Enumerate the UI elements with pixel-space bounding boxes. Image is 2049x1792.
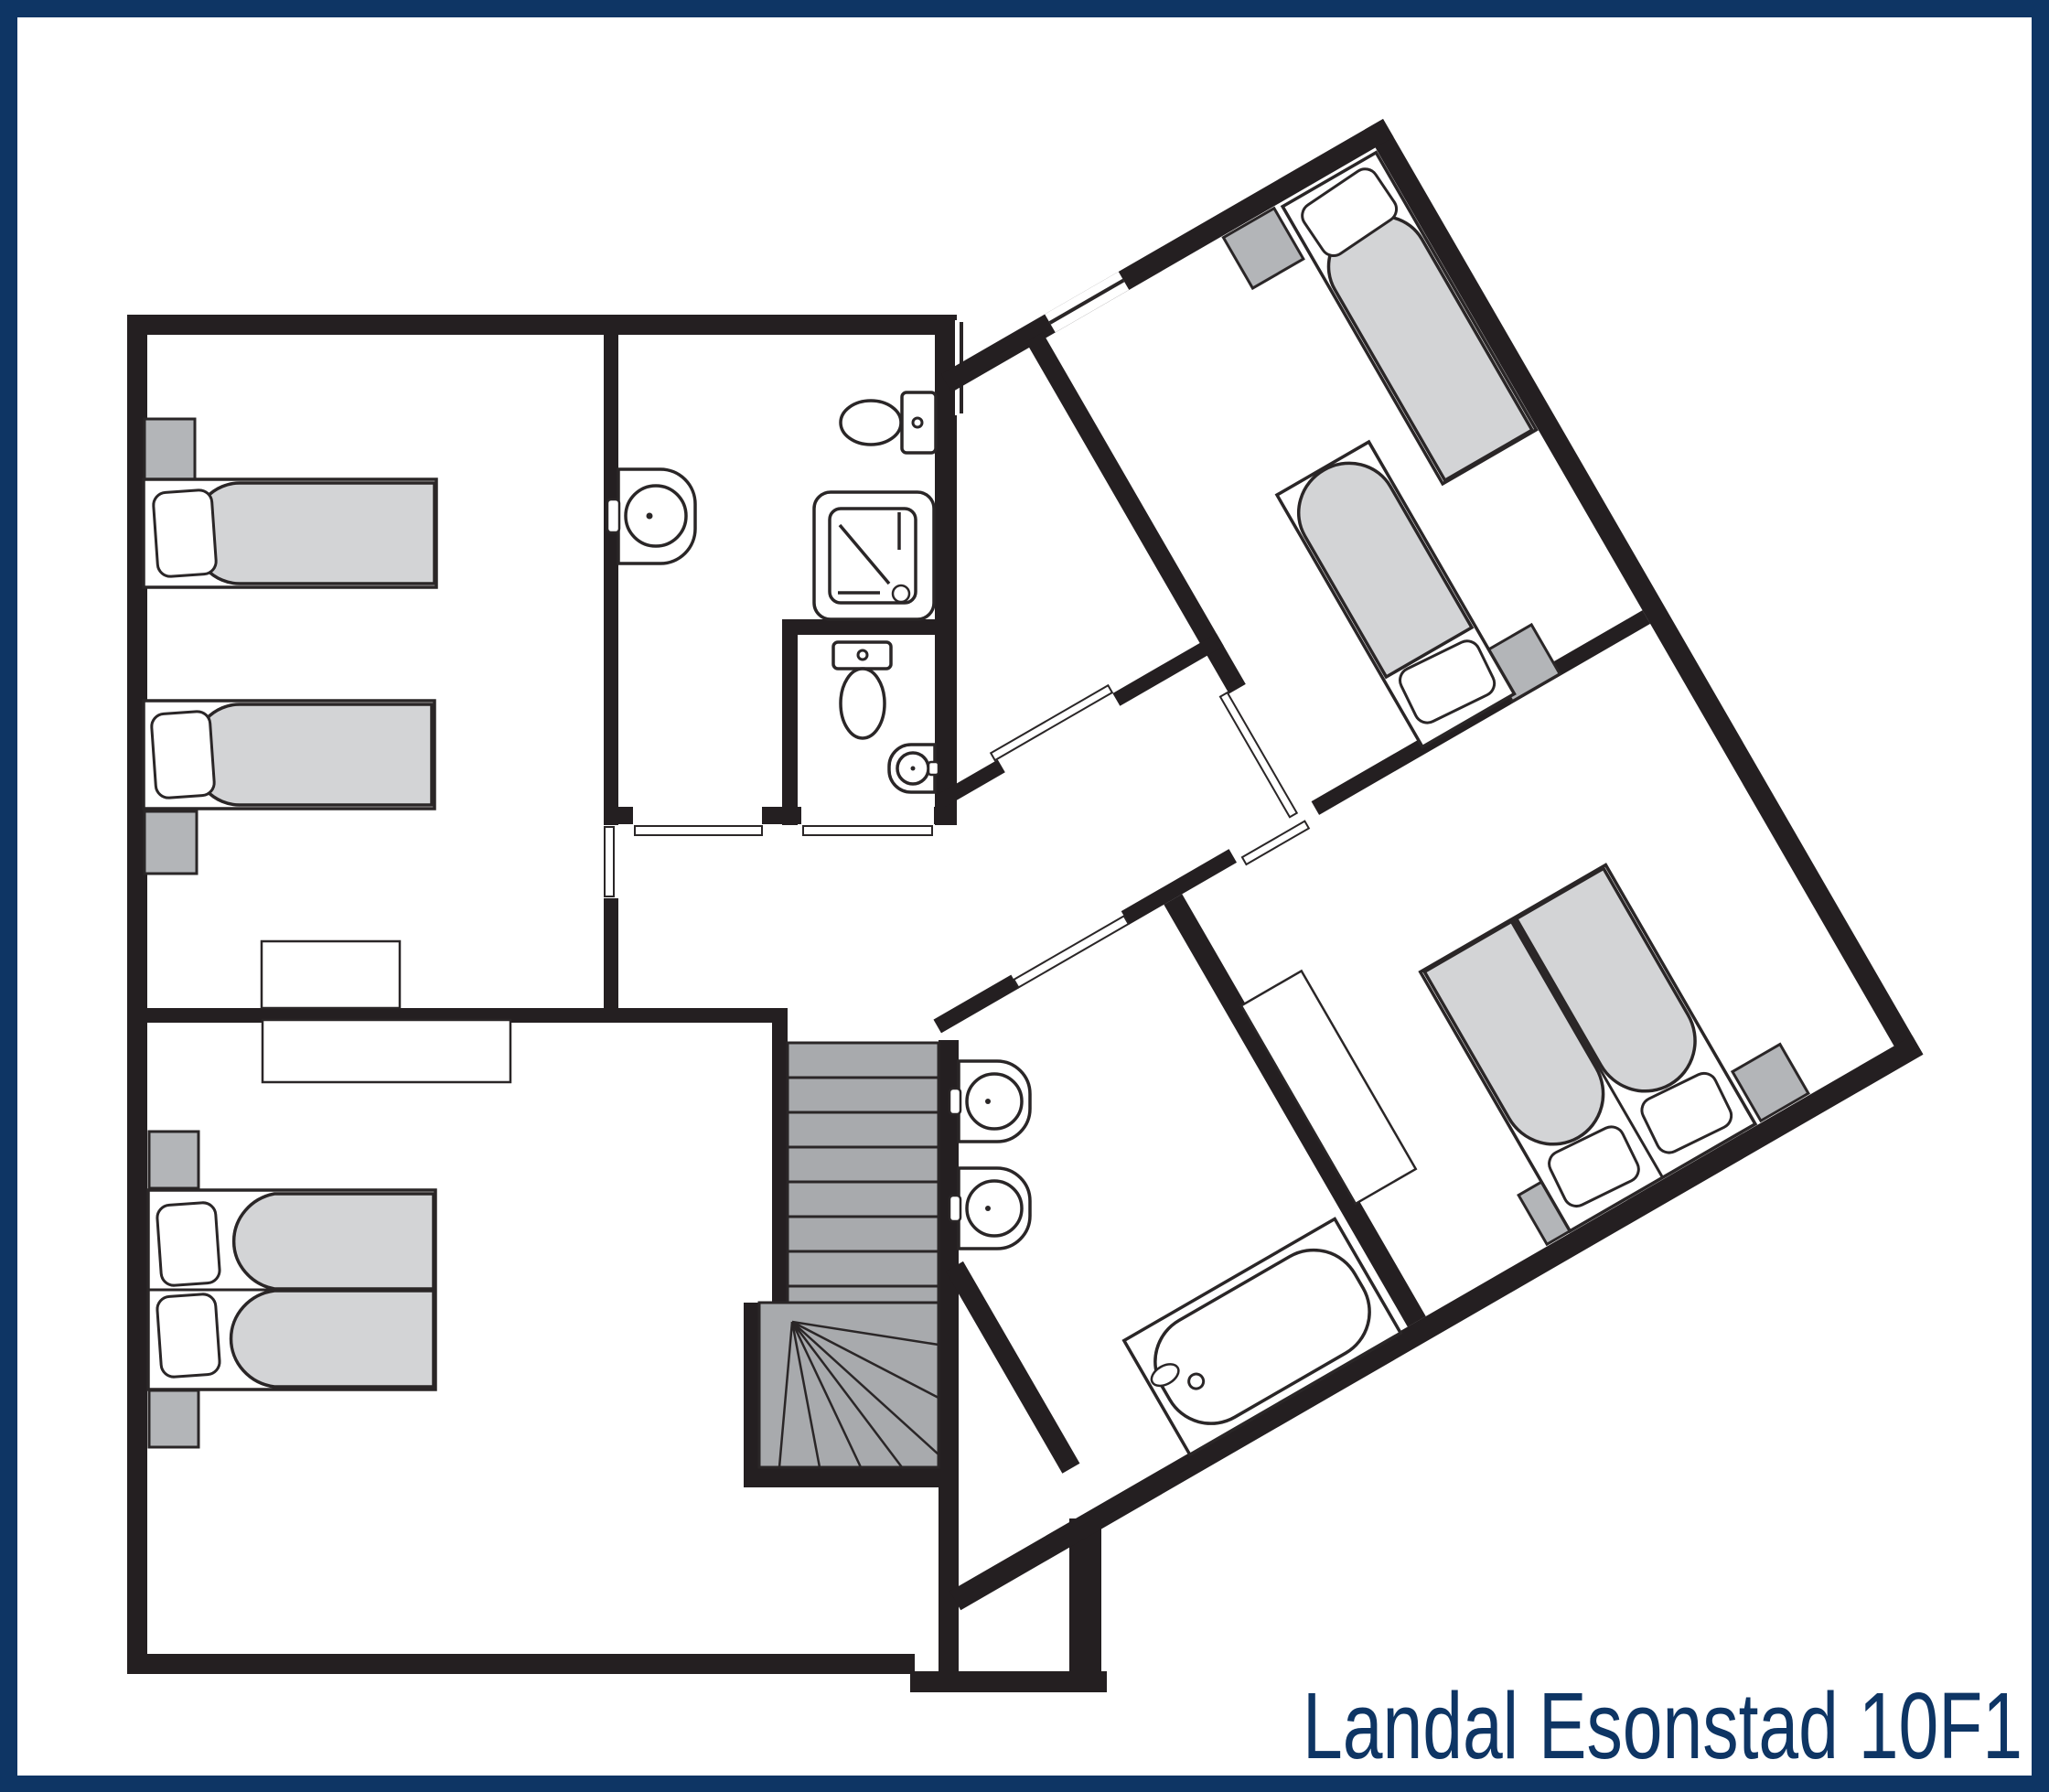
svg-text:Landal Esonstad 10F1: Landal Esonstad 10F1 — [1303, 1673, 2022, 1778]
